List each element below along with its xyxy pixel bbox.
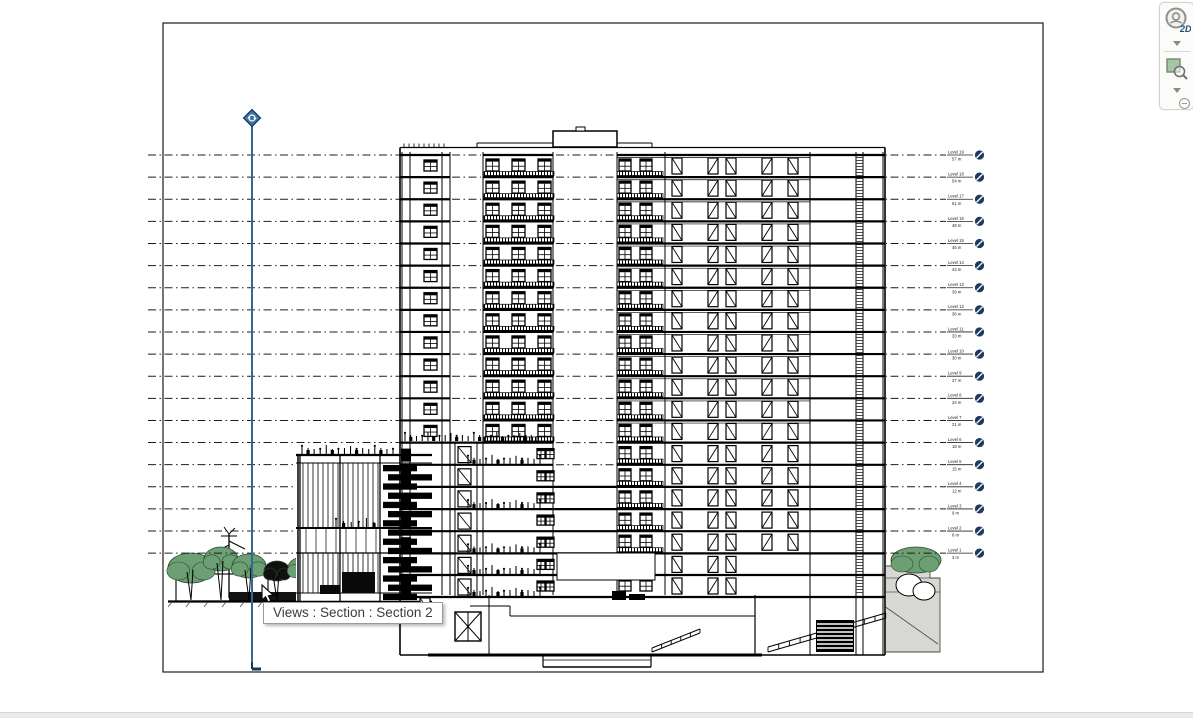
svg-text:39 m: 39 m bbox=[952, 289, 962, 294]
svg-text:21 m: 21 m bbox=[952, 422, 962, 427]
svg-text:57 m: 57 m bbox=[952, 157, 962, 162]
svg-text:33 m: 33 m bbox=[952, 334, 962, 339]
svg-text:Level 5: Level 5 bbox=[948, 459, 962, 464]
svg-text:Level 14: Level 14 bbox=[948, 260, 965, 265]
steering-wheel-2d-icon: 2D bbox=[1163, 5, 1191, 35]
chevron-down-icon bbox=[1173, 88, 1181, 93]
svg-text:Level 8: Level 8 bbox=[948, 393, 962, 398]
chevron-down-icon bbox=[1173, 41, 1181, 46]
svg-text:9 m: 9 m bbox=[952, 511, 959, 516]
svg-text:18 m: 18 m bbox=[952, 444, 962, 449]
svg-text:Level 16: Level 16 bbox=[948, 216, 965, 221]
svg-text:Level 17: Level 17 bbox=[948, 194, 965, 199]
svg-text:30 m: 30 m bbox=[952, 356, 962, 361]
svg-text:Level 13: Level 13 bbox=[948, 282, 965, 287]
svg-text:42 m: 42 m bbox=[952, 267, 962, 272]
navbar-collapse-button[interactable] bbox=[1179, 98, 1190, 109]
view-tooltip-text: Views : Section : Section 2 bbox=[273, 605, 433, 620]
svg-text:Level 18: Level 18 bbox=[948, 172, 965, 177]
zoom-region-icon bbox=[1164, 56, 1190, 82]
section-drawing[interactable]: Level 1957 mLevel 1854 mLevel 1751 mLeve… bbox=[0, 0, 1193, 718]
zoom-region-button[interactable] bbox=[1163, 54, 1191, 84]
zoom-menu-chevron[interactable] bbox=[1163, 85, 1191, 95]
svg-text:48 m: 48 m bbox=[952, 223, 962, 228]
svg-text:Level 2: Level 2 bbox=[948, 525, 962, 530]
svg-text:54 m: 54 m bbox=[952, 179, 962, 184]
svg-text:Level 19: Level 19 bbox=[948, 149, 965, 154]
svg-text:Level 1: Level 1 bbox=[948, 548, 962, 553]
svg-text:Level 15: Level 15 bbox=[948, 238, 965, 243]
svg-text:Level 10: Level 10 bbox=[948, 348, 965, 353]
svg-text:3 m: 3 m bbox=[952, 555, 959, 560]
svg-text:27 m: 27 m bbox=[952, 378, 962, 383]
navigation-bar: 2D bbox=[1159, 2, 1193, 110]
svg-text:45 m: 45 m bbox=[952, 245, 962, 250]
steering-wheel-menu-chevron[interactable] bbox=[1163, 38, 1191, 48]
svg-text:Level 3: Level 3 bbox=[948, 503, 962, 508]
level-markers[interactable]: Level 1957 mLevel 1854 mLevel 1751 mLeve… bbox=[947, 149, 984, 559]
view-tooltip: Views : Section : Section 2 bbox=[263, 602, 443, 624]
svg-text:6 m: 6 m bbox=[952, 533, 959, 538]
navbar-divider bbox=[1164, 51, 1190, 52]
svg-text:24 m: 24 m bbox=[952, 400, 962, 405]
svg-text:Level 4: Level 4 bbox=[948, 481, 962, 486]
svg-text:Level 7: Level 7 bbox=[948, 415, 962, 420]
svg-text:12 m: 12 m bbox=[952, 488, 962, 493]
svg-text:Level 11: Level 11 bbox=[948, 326, 964, 331]
svg-text:Level 12: Level 12 bbox=[948, 304, 965, 309]
svg-text:Level 6: Level 6 bbox=[948, 437, 962, 442]
steering-wheel-2d-button[interactable]: 2D bbox=[1163, 3, 1191, 37]
svg-text:Level 9: Level 9 bbox=[948, 371, 962, 376]
svg-text:15 m: 15 m bbox=[952, 466, 962, 471]
collapse-icon bbox=[1179, 98, 1190, 109]
revit-drawing-canvas[interactable]: Level 1957 mLevel 1854 mLevel 1751 mLeve… bbox=[0, 0, 1193, 718]
bottom-edge bbox=[0, 712, 1193, 718]
svg-text:2D: 2D bbox=[1179, 24, 1191, 34]
svg-text:36 m: 36 m bbox=[952, 311, 962, 316]
svg-text:51 m: 51 m bbox=[952, 201, 962, 206]
